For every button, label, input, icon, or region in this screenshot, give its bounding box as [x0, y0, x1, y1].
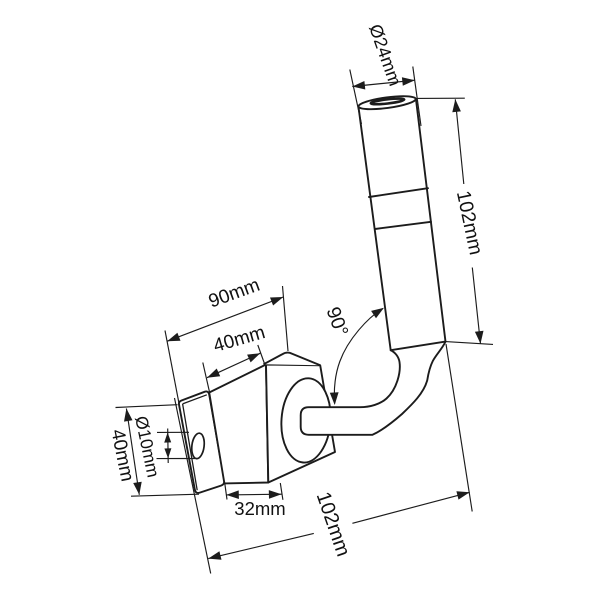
svg-text:32mm: 32mm [234, 498, 285, 519]
